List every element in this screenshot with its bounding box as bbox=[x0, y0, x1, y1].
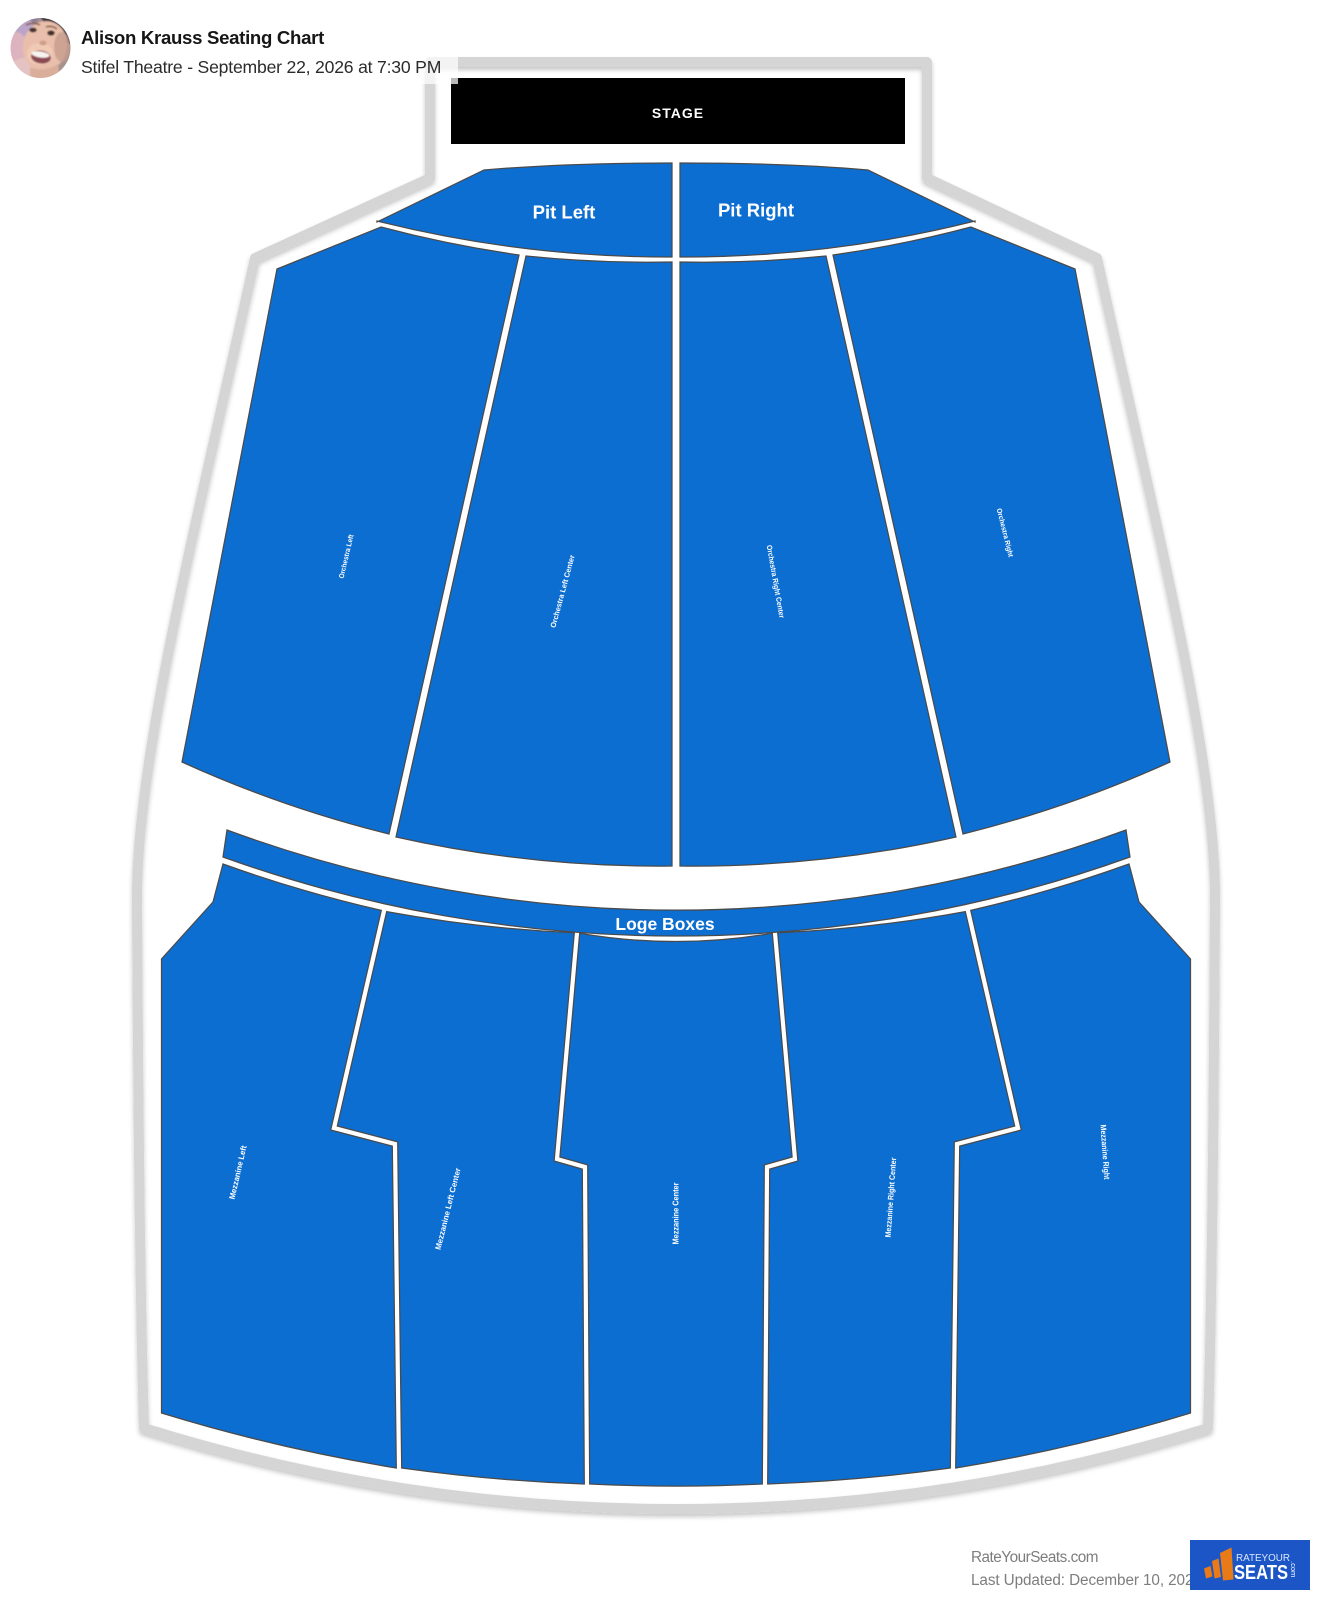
svg-text:Pit Right: Pit Right bbox=[718, 200, 794, 221]
svg-text:RateYourSeats.com: RateYourSeats.com bbox=[971, 1549, 1098, 1566]
svg-text:Stifel Theatre - September 22,: Stifel Theatre - September 22, 2026 at 7… bbox=[81, 57, 441, 77]
svg-text:Loge Boxes: Loge Boxes bbox=[615, 914, 714, 934]
svg-text:Pit Left: Pit Left bbox=[533, 202, 596, 223]
svg-text:Mezzanine Center: Mezzanine Center bbox=[672, 1183, 681, 1245]
svg-text:STAGE: STAGE bbox=[652, 105, 704, 121]
svg-text:Last Updated: December 10, 202: Last Updated: December 10, 2025 bbox=[971, 1572, 1202, 1589]
svg-text:.com: .com bbox=[1289, 1561, 1298, 1577]
svg-text:Alison Krauss Seating Chart: Alison Krauss Seating Chart bbox=[81, 27, 324, 48]
svg-text:SEATS: SEATS bbox=[1234, 1562, 1288, 1584]
